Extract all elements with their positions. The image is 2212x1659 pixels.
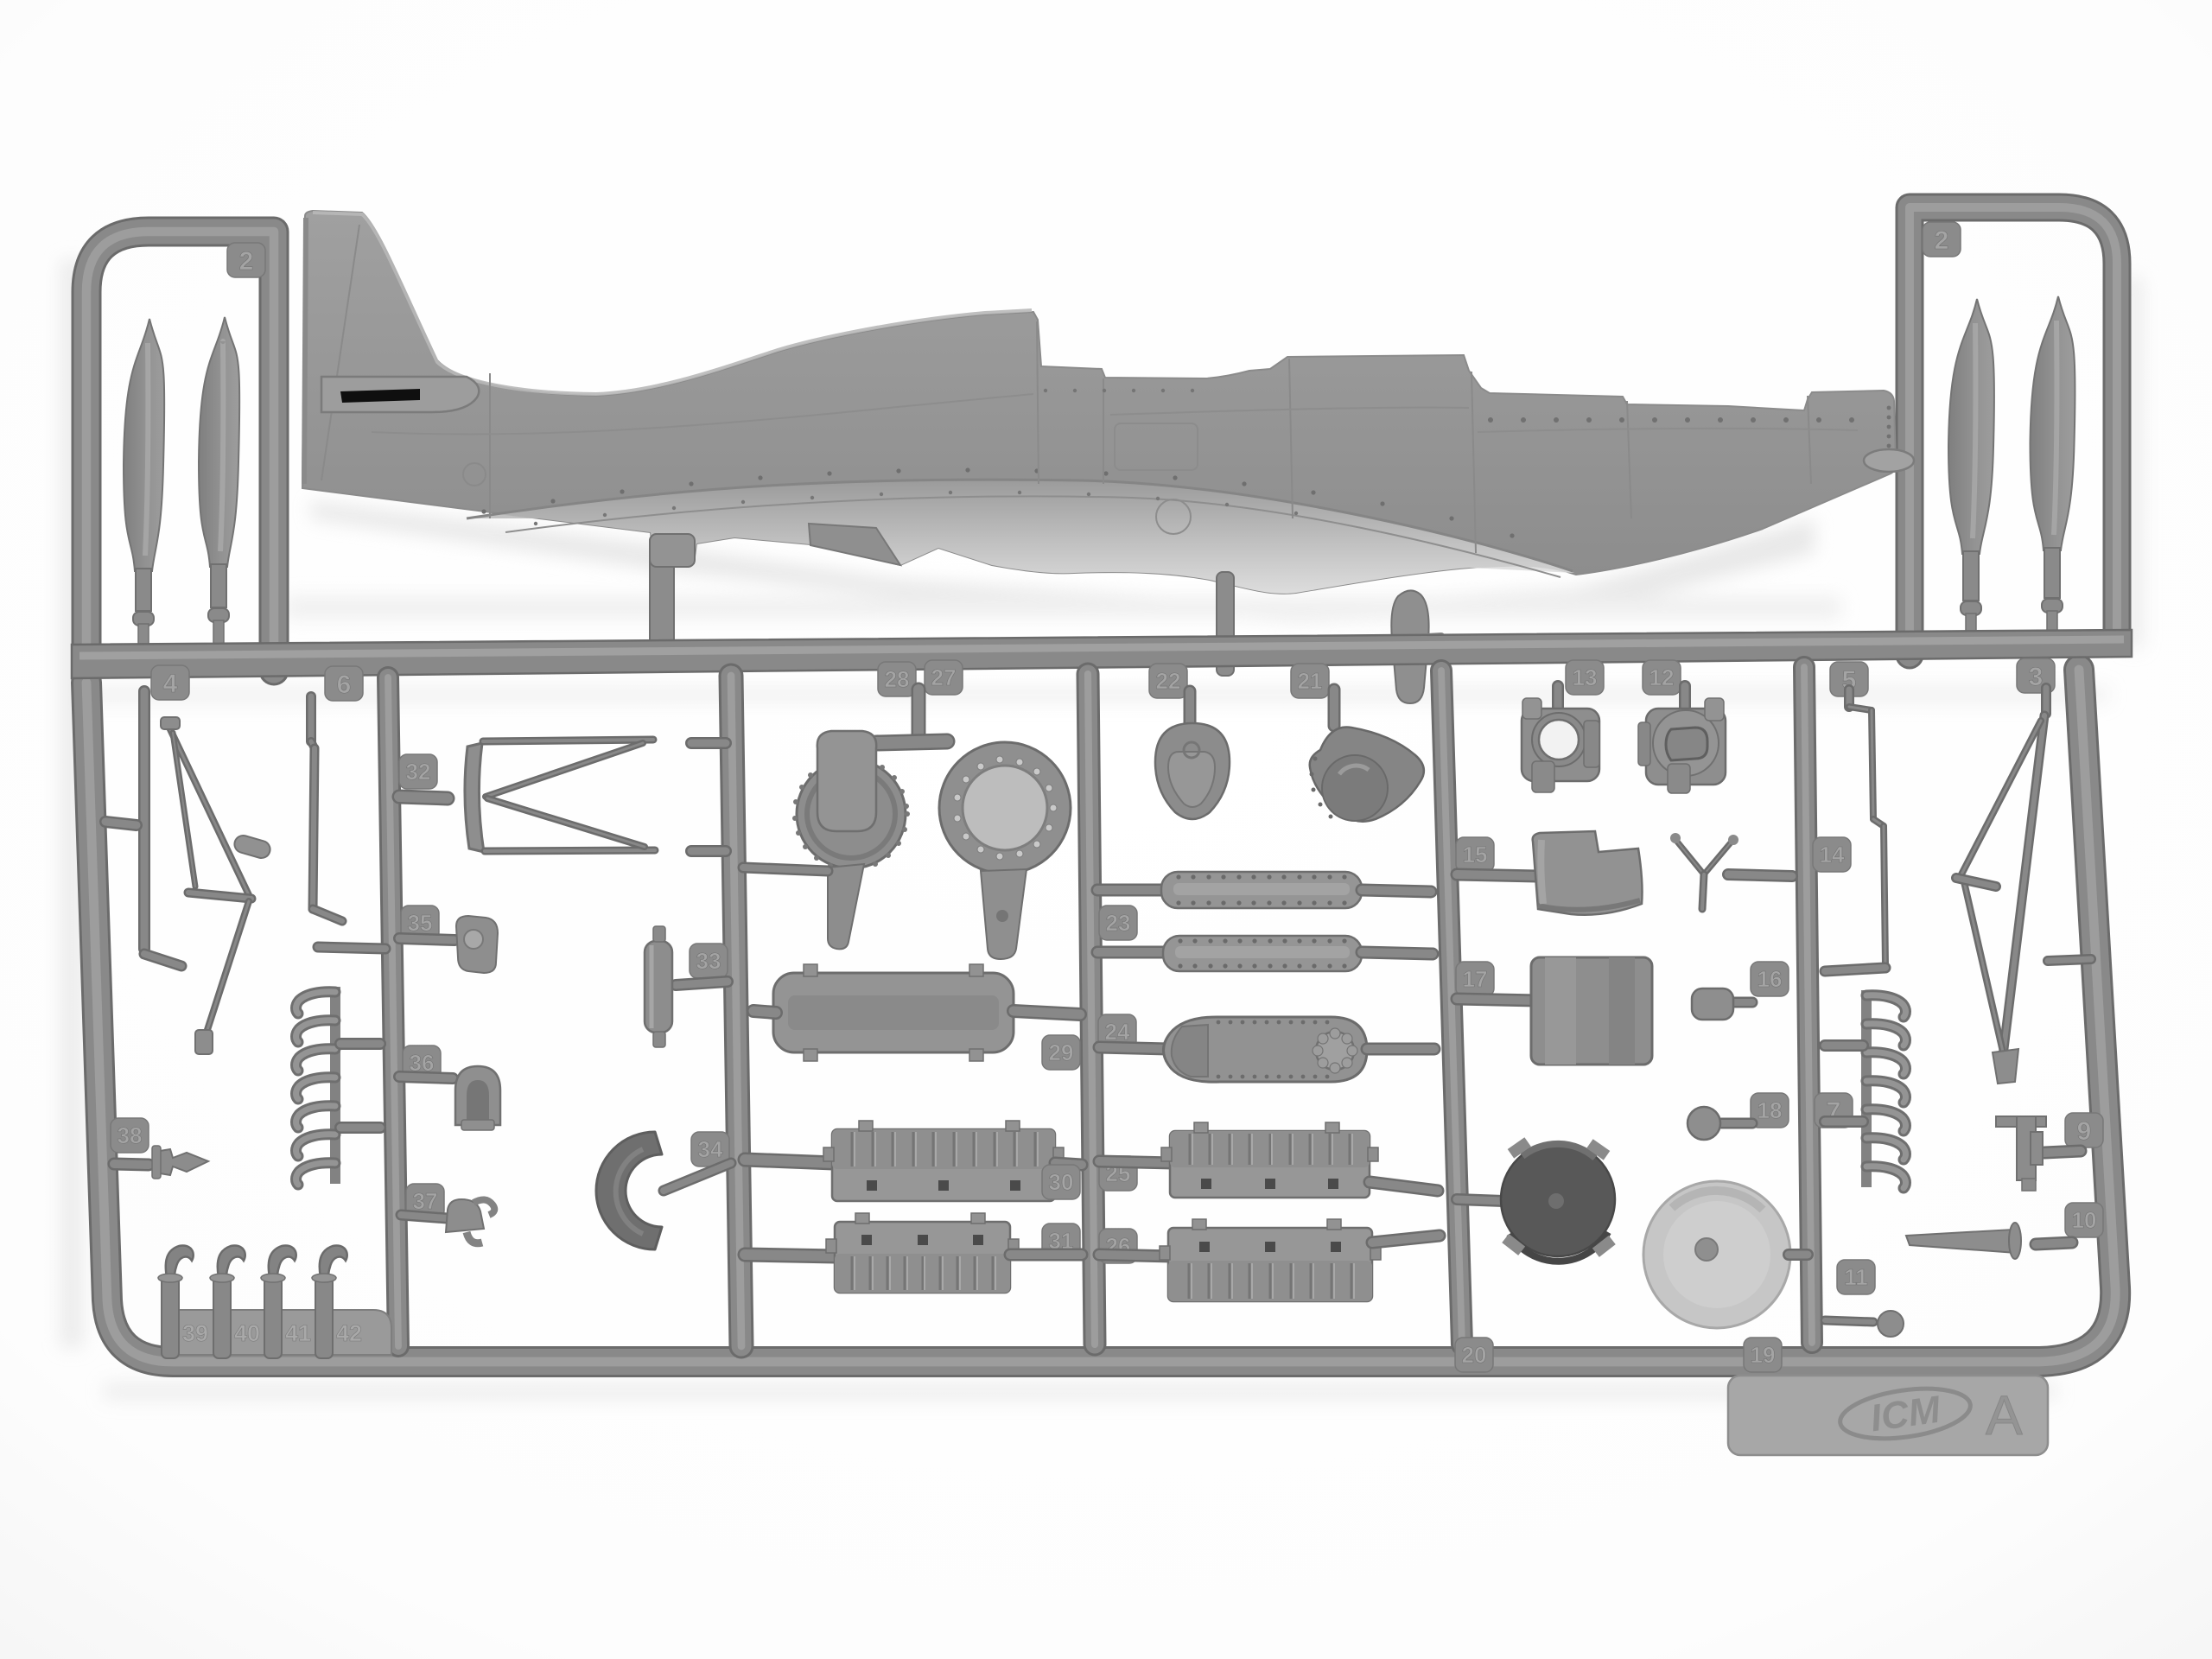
svg-text:16: 16 <box>1758 966 1783 992</box>
svg-text:39: 39 <box>182 1320 208 1346</box>
svg-text:19: 19 <box>1751 1342 1776 1368</box>
svg-text:3: 3 <box>2029 663 2044 691</box>
svg-text:29: 29 <box>1049 1039 1074 1065</box>
svg-text:33: 33 <box>696 948 721 974</box>
svg-text:35: 35 <box>408 910 433 936</box>
svg-text:23: 23 <box>1106 910 1131 936</box>
svg-text:10: 10 <box>2072 1207 2097 1233</box>
svg-text:6: 6 <box>337 671 352 699</box>
svg-text:17: 17 <box>1463 966 1488 992</box>
svg-text:42: 42 <box>336 1320 362 1346</box>
svg-text:34: 34 <box>698 1136 723 1162</box>
svg-text:14: 14 <box>1820 842 1845 868</box>
svg-text:24: 24 <box>1105 1019 1130 1045</box>
svg-text:A: A <box>1986 1384 2023 1446</box>
svg-text:15: 15 <box>1463 842 1488 868</box>
svg-text:11: 11 <box>1844 1264 1868 1290</box>
svg-text:2: 2 <box>239 247 254 276</box>
svg-text:27: 27 <box>931 664 957 690</box>
svg-text:38: 38 <box>118 1122 143 1148</box>
svg-text:28: 28 <box>885 666 910 692</box>
svg-text:22: 22 <box>1156 668 1181 694</box>
svg-text:32: 32 <box>406 759 431 785</box>
svg-text:4: 4 <box>163 670 178 698</box>
svg-text:21: 21 <box>1298 668 1323 694</box>
svg-text:13: 13 <box>1573 664 1598 690</box>
svg-text:37: 37 <box>413 1188 438 1214</box>
svg-text:30: 30 <box>1049 1169 1074 1195</box>
svg-text:9: 9 <box>2077 1117 2092 1146</box>
svg-text:40: 40 <box>234 1320 260 1346</box>
svg-text:18: 18 <box>1758 1097 1783 1123</box>
svg-text:41: 41 <box>285 1320 311 1346</box>
svg-text:20: 20 <box>1462 1342 1487 1368</box>
svg-text:2: 2 <box>1935 226 1949 255</box>
svg-text:12: 12 <box>1649 664 1675 690</box>
